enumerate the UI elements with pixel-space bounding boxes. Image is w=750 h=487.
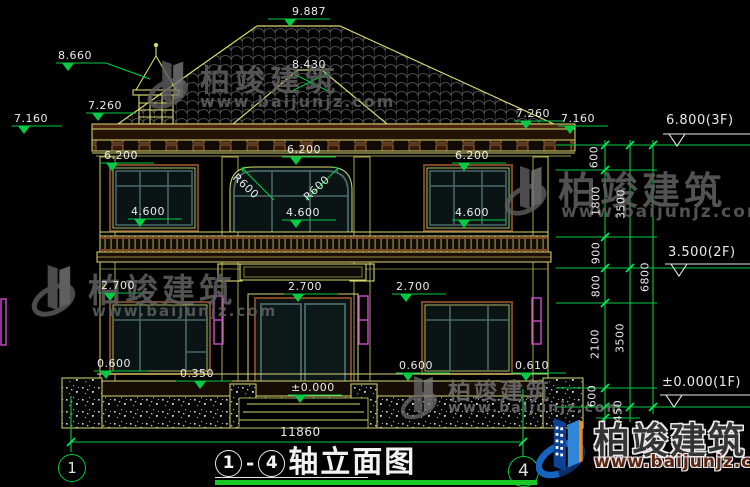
dim-eave-right-inner: 7.260	[516, 107, 550, 120]
watermark-logo-icon	[28, 260, 84, 320]
vdim-1800: 1800	[590, 186, 603, 216]
cornice	[92, 129, 575, 156]
vdim-600-a: 600	[588, 146, 601, 169]
dim-eave-left-inner: 7.260	[88, 99, 122, 112]
dim-win2f-sill-right: 4.600	[455, 206, 489, 219]
vdim-6800: 6800	[639, 262, 652, 292]
vdim-600-b: 600	[586, 385, 599, 408]
level-2f: 3.500(2F)	[668, 246, 736, 259]
brand-logo-icon	[536, 412, 592, 482]
title-underline-green	[215, 480, 537, 485]
dim-turret: 8.660	[58, 49, 92, 62]
axis-bubble-1: 1	[58, 454, 86, 482]
dim-win2f-top-left: 6.200	[104, 149, 138, 162]
dim-win2f-sill-center: 4.600	[286, 206, 320, 219]
vdim-2100: 2100	[589, 329, 602, 359]
dim-ledge-left: 0.350	[180, 367, 214, 380]
watermark-logo-icon	[400, 372, 442, 422]
dim-head1f-left: 2.700	[101, 279, 135, 292]
dim-sill1f-right: 0.600	[399, 359, 433, 372]
level-3f: 6.800(3F)	[666, 114, 734, 127]
vdim-800: 800	[590, 275, 603, 298]
vdim-900: 900	[590, 242, 603, 265]
cad-canvas: 柏竣建筑 www.baijunjz.com 柏竣建筑 www.baijunjz.…	[0, 0, 750, 487]
dim-win2f-top-center: 6.200	[287, 143, 321, 156]
dim-door-zero: ±0.000	[291, 381, 335, 394]
title-text: 轴立面图	[288, 446, 416, 480]
watermark-logo-icon	[504, 158, 552, 222]
title-underline-white	[215, 477, 368, 478]
dim-sill1f-left: 0.600	[97, 357, 131, 370]
dim-win2f-top-right: 6.200	[455, 149, 489, 162]
dim-head1f-right: 2.700	[396, 280, 430, 293]
dim-head1f-center: 2.700	[288, 280, 322, 293]
brand-url: www.baijunjz.com	[594, 452, 750, 472]
vdim-3500-a: 3500	[615, 189, 628, 219]
title-axis-end: 4	[258, 450, 285, 477]
watermark-logo-icon	[142, 56, 198, 112]
title-axis-start: 1	[215, 450, 242, 477]
dim-win2f-sill-left: 4.600	[131, 205, 165, 218]
dim-ledge-right: 0.610	[515, 359, 549, 372]
dim-apex: 9.887	[292, 5, 326, 18]
level-1f: ±0.000(1F)	[662, 376, 741, 389]
vdim-3500-b: 3500	[614, 323, 627, 353]
watermark-url: www.baijunjz.com	[200, 92, 395, 111]
dim-eave-left-outer: 7.160	[14, 112, 48, 125]
dim-eave-right-outer: 7.160	[561, 112, 595, 125]
watermark-url: www.baijunjz.com	[92, 302, 277, 320]
dim-total-width: 11860	[280, 426, 321, 439]
dim-ridge2: 8.430	[292, 58, 326, 71]
title-dash: -	[246, 451, 254, 475]
drawing-title: 1 - 4 轴立面图	[215, 446, 416, 480]
